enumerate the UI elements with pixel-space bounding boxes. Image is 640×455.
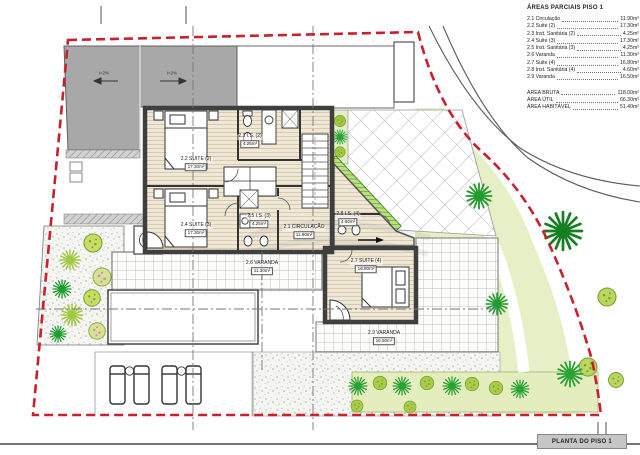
parking-court	[237, 46, 394, 108]
room-label-is2: 2.3 I.S. (2) 4.25m²	[237, 134, 262, 148]
legend-item: 2.2 Suite (2)17.30m²	[527, 23, 639, 30]
room-label-suite4: 2.7 SUITE (4) 16.80m²	[350, 259, 383, 273]
drawing-title: PLANTA DO PISO 1	[537, 434, 627, 449]
room-label-circulacao: 2.1 CIRCULAÇÃO 11.90m²	[282, 225, 325, 239]
legend-item: 2.1 Circulação11.90m²	[527, 16, 639, 23]
room-label-suite2: 2.2 SUITE (2) 17.30m²	[180, 157, 213, 171]
legend-item: 2.6 Varanda11.30m²	[527, 52, 639, 59]
legend-item: 2.7 Suite (4)16.80m²	[527, 60, 639, 67]
legend-item: 2.3 Inst. Sanitária (2)4.25m²	[527, 31, 639, 38]
areas-legend: ÁREAS PARCIAIS PISO 1 2.1 Circulação11.9…	[527, 5, 639, 112]
legend-item: 2.8 Inst. Sanitária (4)4.60m²	[527, 67, 639, 74]
roof-slope-right-label: i=2%	[167, 71, 177, 76]
legend-total: ÁREA BRUTA118.00m²	[527, 90, 639, 97]
legend-total: ÁREA HABITÁVEL51.40m²	[527, 104, 639, 111]
pillar	[394, 42, 414, 102]
staircase	[302, 134, 328, 208]
room-label-is4: 2.8 I.S. (4) 4.60m²	[335, 212, 360, 226]
floor-plan-sheet: ÁREAS PARCIAIS PISO 1 2.1 Circulação11.9…	[0, 0, 640, 455]
room-label-varanda26: 2.6 VARANDA 11.30m²	[245, 261, 279, 275]
pool	[108, 290, 258, 344]
legend-item: 2.5 Inst. Sanitária (3)4.25m²	[527, 45, 639, 52]
room-label-is3: 2.5 I.S. (3) 4.25m²	[246, 214, 271, 228]
legend-item: 2.9 Varanda16.50m²	[527, 74, 639, 81]
room-label-suite3: 2.4 SUITE (3) 17.30m²	[180, 223, 213, 237]
legend-item: 2.4 Suite (3)17.30m²	[527, 38, 639, 45]
roof-slope-left-label: i=2%	[99, 71, 109, 76]
legend-title: ÁREAS PARCIAIS PISO 1	[527, 5, 639, 11]
room-label-varanda29: 2.9 VARANDA 16.50m²	[367, 331, 401, 345]
